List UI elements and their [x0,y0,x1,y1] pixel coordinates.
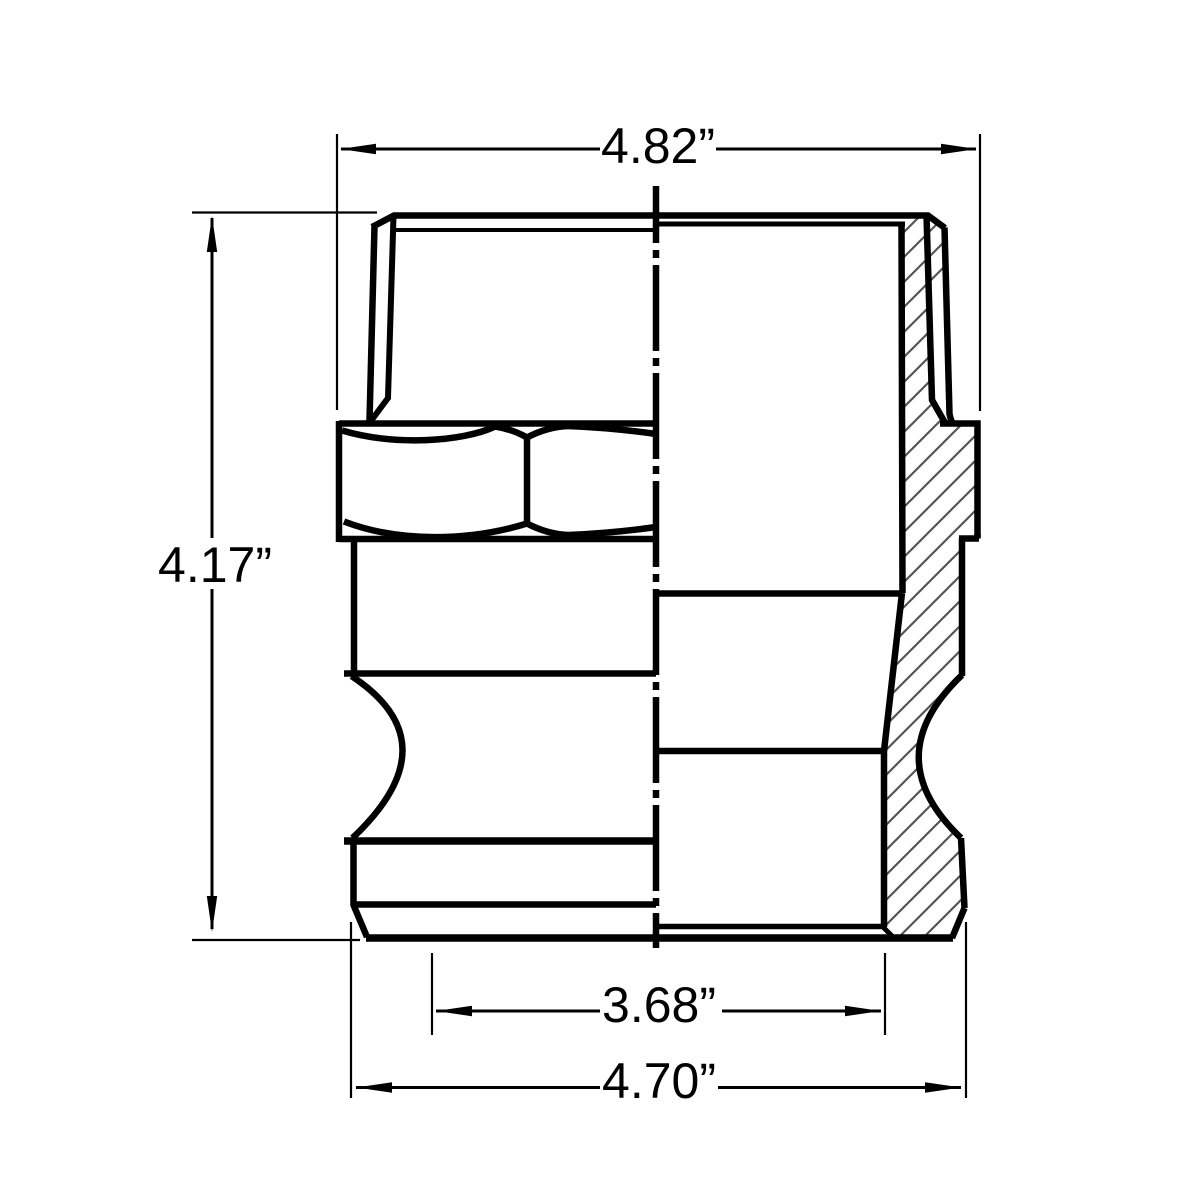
svg-text:3.68”: 3.68” [602,977,716,1033]
svg-text:4.82”: 4.82” [601,118,715,174]
svg-text:4.17”: 4.17” [158,537,272,593]
svg-text:4.70”: 4.70” [602,1053,716,1109]
